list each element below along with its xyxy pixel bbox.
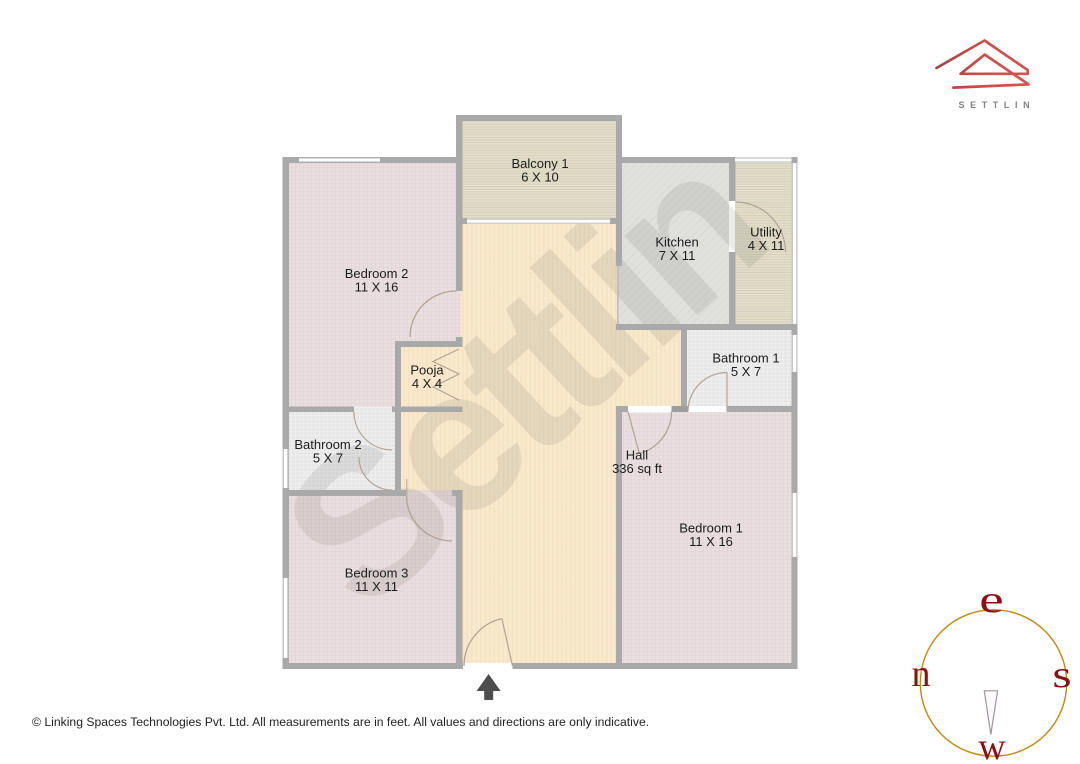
svg-text:11 X 16: 11 X 16 xyxy=(689,534,733,549)
svg-text:5 X 7: 5 X 7 xyxy=(313,451,343,466)
svg-text:4 X 11: 4 X 11 xyxy=(748,238,785,253)
svg-text:11 X 11: 11 X 11 xyxy=(355,579,398,594)
svg-text:w: w xyxy=(978,726,1006,764)
svg-text:e: e xyxy=(979,579,1003,621)
svg-text:6 X 10: 6 X 10 xyxy=(521,170,559,185)
svg-text:© Linking Spaces Technologies: © Linking Spaces Technologies Pvt. Ltd. … xyxy=(32,715,649,729)
svg-text:11 X 16: 11 X 16 xyxy=(355,280,399,295)
svg-text:5 X 7: 5 X 7 xyxy=(731,364,761,379)
svg-text:n: n xyxy=(912,653,931,695)
svg-text:SETTLIN: SETTLIN xyxy=(959,100,1036,110)
svg-text:s: s xyxy=(1052,653,1071,695)
svg-text:4 X 4: 4 X 4 xyxy=(412,376,442,391)
svg-text:7 X 11: 7 X 11 xyxy=(659,248,696,263)
svg-text:336 sq ft: 336 sq ft xyxy=(612,461,662,476)
